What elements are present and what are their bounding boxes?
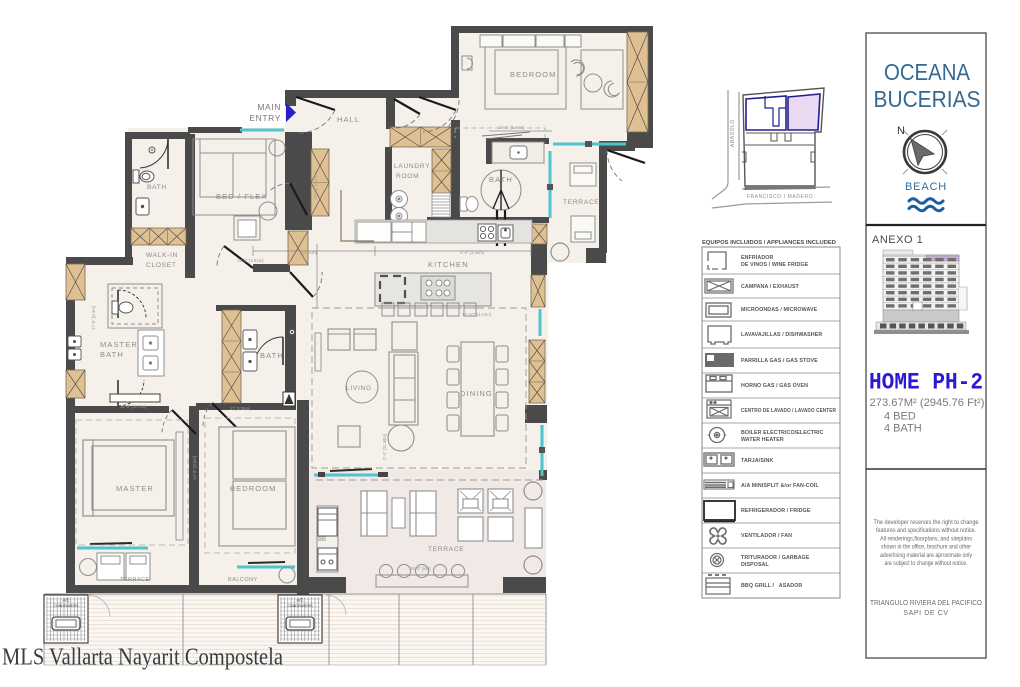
svg-text:A/C: A/C <box>63 598 70 603</box>
svg-text:12'-6" [3.81m]: 12'-6" [3.81m] <box>237 258 263 263</box>
svg-text:CENTRO DE LAVADO / LAVADO CENT: CENTRO DE LAVADO / LAVADO CENTER <box>741 408 836 414</box>
svg-text:DINING: DINING <box>460 389 493 398</box>
svg-text:4 BATH: 4 BATH <box>884 423 922 435</box>
svg-text:PARRILLA GAS / GAS STOVE: PARRILLA GAS / GAS STOVE <box>741 358 818 364</box>
svg-text:WATER HEATER: WATER HEATER <box>741 437 784 443</box>
svg-text:26'-3" [8m]: 26'-3" [8m] <box>410 566 431 571</box>
svg-text:shown in the office, brochure: shown in the office, brochure and other <box>881 544 971 551</box>
svg-text:MAIN: MAIN <box>257 102 281 112</box>
svg-text:BATH: BATH <box>100 350 124 359</box>
svg-text:17'-10" [4.43m]: 17'-10" [4.43m] <box>462 312 491 317</box>
svg-text:MICROONDAS / MICROWAVE: MICROONDAS / MICROWAVE <box>741 307 818 313</box>
svg-text:All renderings,floorplans, and: All renderings,floorplans, and siteplans <box>880 535 972 542</box>
svg-text:MASTER: MASTER <box>100 340 138 349</box>
svg-text:ENTRY: ENTRY <box>249 113 281 123</box>
svg-text:BEDROOM: BEDROOM <box>510 70 556 79</box>
svg-text:TRIANGULO RIVIERA DEL PACIFICO: TRIANGULO RIVIERA DEL PACIFICO <box>870 600 983 607</box>
svg-text:BUCERIAS: BUCERIAS <box>874 86 981 112</box>
svg-text:MLS Vallarta Nayarit Compostel: MLS Vallarta Nayarit Compostela <box>2 645 283 671</box>
svg-text:are subject to change without: are subject to change without notice. <box>885 560 968 567</box>
svg-text:CONDENSERS: CONDENSERS <box>287 604 313 608</box>
svg-text:ANEXO 1: ANEXO 1 <box>872 234 923 246</box>
svg-text:17 [3.35m]: 17 [3.35m] <box>230 406 250 411</box>
svg-text:17'-5" [5.3m]: 17'-5" [5.3m] <box>91 306 96 330</box>
svg-text:BATH: BATH <box>489 175 513 184</box>
svg-text:CONDENSERS: CONDENSERS <box>53 604 79 608</box>
svg-text:HORNO GAS / GAS OVEN: HORNO GAS / GAS OVEN <box>741 383 808 389</box>
svg-text:BOILER ELECTRICO/ELECTRIC: BOILER ELECTRICO/ELECTRIC <box>741 430 824 436</box>
svg-text:MASTER: MASTER <box>116 484 154 493</box>
svg-text:DE VINOS / WINE FRIDGE: DE VINOS / WINE FRIDGE <box>741 262 809 268</box>
svg-text:OCEANA: OCEANA <box>884 59 971 85</box>
svg-text:CLOSET: CLOSET <box>146 262 177 269</box>
svg-text:BB: BB <box>318 537 326 543</box>
svg-text:TRITURADOR / GARBAGE: TRITURADOR / GARBAGE <box>741 555 810 561</box>
svg-text:HOME PH-2: HOME PH-2 <box>869 370 983 396</box>
svg-text:VENTILADOR / FAN: VENTILADOR / FAN <box>741 533 792 539</box>
svg-text:KITCHEN: KITCHEN <box>428 260 469 269</box>
svg-text:TARJA/SINK: TARJA/SINK <box>741 458 773 464</box>
svg-text:BBQ GRILL / ASADOR: BBQ GRILL / ASADOR <box>741 583 802 589</box>
svg-text:BED / FLEX: BED / FLEX <box>216 192 267 201</box>
svg-text:ENFRIADOR: ENFRIADOR <box>741 255 773 261</box>
svg-text:TERRACE: TERRACE <box>120 577 150 583</box>
svg-text:BEDROOM: BEDROOM <box>230 484 276 493</box>
svg-text:WALK-IN: WALK-IN <box>146 252 178 259</box>
svg-text:BEACH: BEACH <box>905 181 947 193</box>
svg-text:FRANCISCO I MADERO: FRANCISCO I MADERO <box>747 194 813 200</box>
svg-text:ROOM: ROOM <box>396 173 419 180</box>
svg-text:features and specifications wi: features and specifications without noti… <box>876 527 976 534</box>
svg-text:A/A MINISPLIT &/or FAN-COIL: A/A MINISPLIT &/or FAN-COIL <box>741 483 819 489</box>
svg-text:273.67M² (2945.76 Ft²): 273.67M² (2945.76 Ft²) <box>870 397 985 409</box>
svg-text:ABASOLO: ABASOLO <box>730 119 736 147</box>
svg-text:4'-9" [1.45m]: 4'-9" [1.45m] <box>460 250 484 255</box>
svg-text:TERRACE: TERRACE <box>563 199 599 206</box>
svg-text:BALCONY: BALCONY <box>228 577 258 583</box>
svg-text:LAUNDRY: LAUNDRY <box>394 163 430 170</box>
svg-text:14'-9" [4.5m]: 14'-9" [4.5m] <box>192 456 197 480</box>
svg-text:CAMPANA / EXHAUST: CAMPANA / EXHAUST <box>741 284 800 290</box>
svg-text:LAVAVAJILLAS / DISHWASHER: LAVAVAJILLAS / DISHWASHER <box>741 332 822 338</box>
svg-text:18'-0" [5.49m]: 18'-0" [5.49m] <box>498 125 524 130</box>
svg-text:The developer reserves the rig: The developer reserves the right to chan… <box>874 519 979 526</box>
svg-text:7' [0.91m]: 7' [0.91m] <box>298 250 317 255</box>
svg-text:4 BED: 4 BED <box>884 411 916 423</box>
svg-text:REFRIGERADOR / FRIDGE: REFRIGERADOR / FRIDGE <box>741 508 811 514</box>
svg-text:BATH: BATH <box>260 351 284 360</box>
svg-text:EQUIPOS INCLUIDOS / APPLIANCES: EQUIPOS INCLUIDOS / APPLIANCES INCLUDED <box>702 240 836 246</box>
svg-text:HALL: HALL <box>337 115 360 124</box>
svg-text:TERRACE: TERRACE <box>428 546 464 553</box>
svg-text:13'-11" [4.24m]: 13'-11" [4.24m] <box>313 171 318 200</box>
svg-text:advertising material are aprox: advertising material are aproximate only <box>880 552 973 559</box>
svg-text:12'-2" [3.72m]: 12'-2" [3.72m] <box>120 404 146 409</box>
svg-text:2'-4" [11.58m]: 2'-4" [11.58m] <box>382 434 387 460</box>
svg-text:DISPOSAL: DISPOSAL <box>741 562 770 568</box>
svg-text:SAPI DE CV: SAPI DE CV <box>903 610 948 617</box>
svg-text:N: N <box>897 125 905 137</box>
svg-text:BATH: BATH <box>147 184 167 191</box>
svg-text:A/C: A/C <box>297 598 304 603</box>
svg-text:LIVING: LIVING <box>346 385 372 392</box>
